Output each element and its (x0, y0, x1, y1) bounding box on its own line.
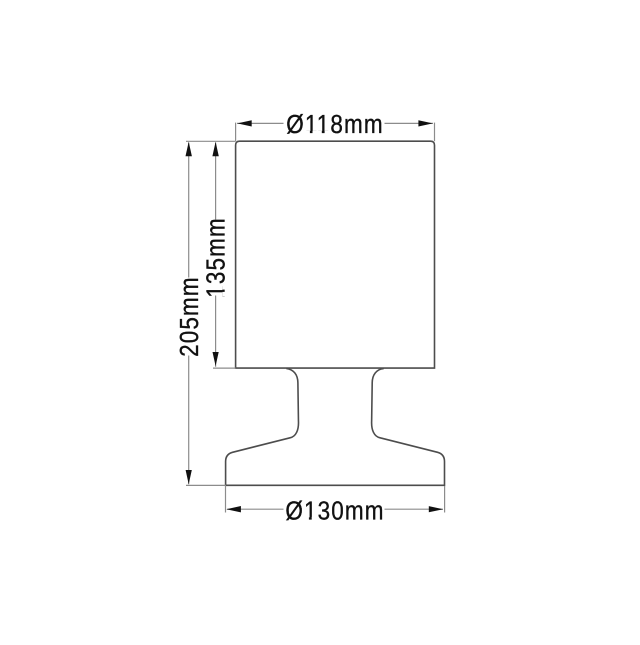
svg-text:Ø118mm: Ø118mm (286, 111, 384, 140)
svg-text:Ø130mm: Ø130mm (285, 497, 384, 526)
svg-text:135mm: 135mm (202, 217, 231, 298)
svg-text:205mm: 205mm (175, 276, 204, 357)
